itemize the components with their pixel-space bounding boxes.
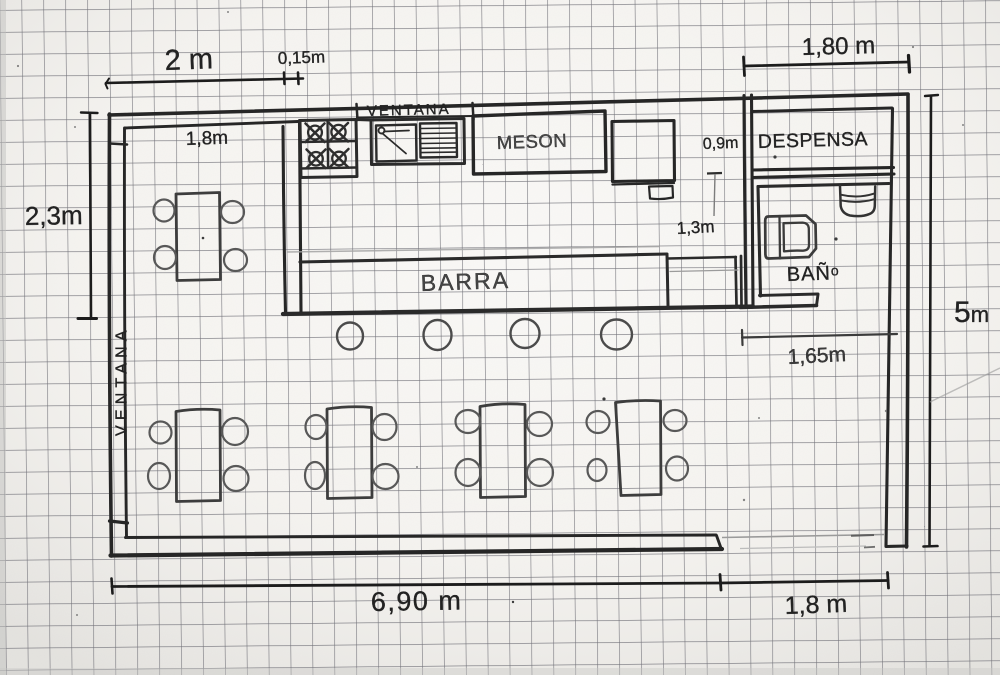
svg-text:2 m: 2 m — [164, 43, 213, 77]
svg-text:1,8m: 1,8m — [185, 128, 228, 150]
svg-text:2,3m: 2,3m — [25, 200, 83, 231]
svg-text:BARRA: BARRA — [420, 267, 510, 296]
svg-text:VENTANA: VENTANA — [114, 325, 131, 436]
svg-text:0,15m: 0,15m — [277, 47, 325, 68]
svg-text:1,65m: 1,65m — [787, 343, 846, 369]
svg-text:MESON: MESON — [496, 130, 567, 153]
svg-text:0,9m: 0,9m — [703, 135, 739, 153]
svg-text:6,90 m: 6,90 m — [371, 585, 463, 617]
svg-text:VENTANA: VENTANA — [367, 101, 451, 120]
svg-text:1,3m: 1,3m — [676, 217, 715, 238]
svg-text:1,8 m: 1,8 m — [784, 590, 847, 620]
svg-text:1,80 m: 1,80 m — [801, 32, 875, 61]
svg-text:DESPENSA: DESPENSA — [758, 128, 869, 153]
